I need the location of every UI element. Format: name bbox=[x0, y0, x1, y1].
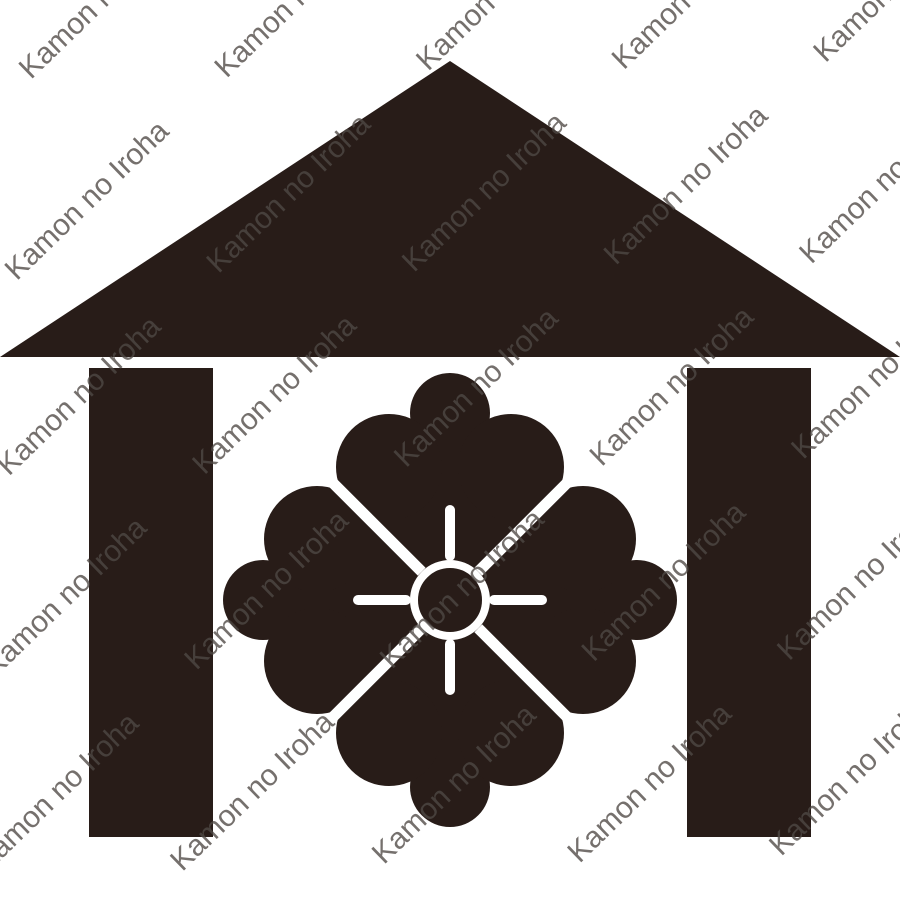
kamon-crest-graphic bbox=[0, 0, 900, 900]
left-pillar-shape bbox=[89, 368, 213, 837]
right-pillar-shape bbox=[687, 368, 811, 837]
crest-black-shapes bbox=[0, 61, 900, 837]
kamon-crest-image: Kamon no IrohaKamon no IrohaKamon no Iro… bbox=[0, 0, 900, 900]
roof-triangle-shape bbox=[0, 61, 900, 357]
flower-center-ring bbox=[414, 564, 486, 636]
